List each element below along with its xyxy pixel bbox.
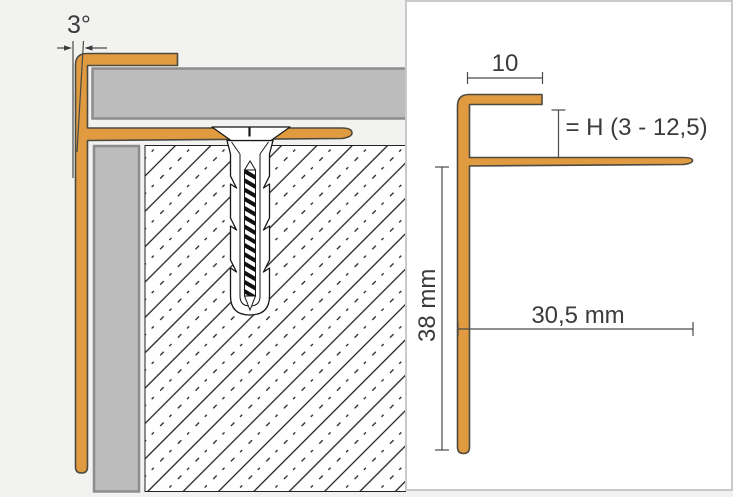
wall-substrate-hatch bbox=[145, 146, 406, 492]
panel-frame bbox=[406, 1, 732, 490]
profile-technical-drawing: 3° 10 = H (3 - 12,5) 38 mm bbox=[0, 0, 733, 497]
dimension-leg-length-label: 38 mm bbox=[414, 269, 441, 342]
installation-cross-section: 3° bbox=[0, 0, 406, 497]
dimension-height-h-label: = H (3 - 12,5) bbox=[566, 114, 708, 141]
riser-tile bbox=[94, 146, 139, 492]
angle-arrowhead-right bbox=[85, 45, 93, 50]
angle-dimension-label: 3° bbox=[67, 11, 91, 39]
dimension-flange-length-label: 30,5 mm bbox=[531, 302, 624, 329]
dimension-diagram-panel: 10 = H (3 - 12,5) 38 mm 30,5 mm bbox=[405, 0, 733, 497]
screw-shaft bbox=[245, 170, 256, 296]
dimension-top-width-label: 10 bbox=[492, 50, 519, 77]
angle-arrowhead-left bbox=[64, 45, 72, 50]
tread-tile bbox=[93, 69, 407, 119]
